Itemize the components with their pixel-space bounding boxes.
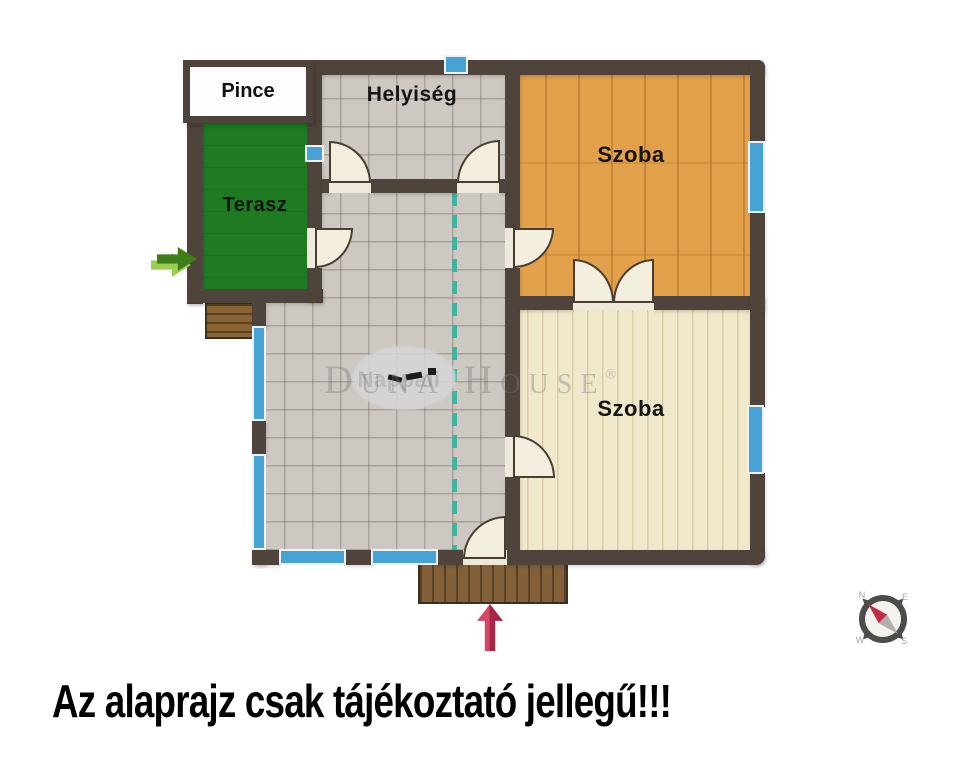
wall-terasz-right-b [307, 161, 322, 228]
terasz-label: Terasz [203, 194, 307, 217]
pince-label: Pince [221, 80, 274, 103]
window-nappali-left-upper [252, 326, 266, 421]
szoba-bottom-floor [512, 300, 758, 557]
window-szoba-top-right [748, 141, 765, 213]
window-nappali-bottom-left [279, 549, 346, 565]
wall-szoba-divider-b [654, 296, 765, 310]
wall-helyiseg-bottom-b [371, 179, 458, 193]
compass-e: E [902, 592, 908, 602]
disclaimer-text: Az alaprajz csak tájékoztató jellegű!!! [52, 674, 671, 728]
wall-szoba-divider-a [518, 296, 573, 310]
wall-bottom-a [252, 550, 280, 565]
wall-right-a [750, 60, 765, 143]
pince-box: Pince [183, 60, 313, 123]
window-nappali-left-lower [252, 454, 266, 550]
compass-s: S [901, 636, 907, 646]
wall-helyiseg-bottom-c [499, 179, 506, 193]
entrance-deck [418, 563, 568, 604]
floor-plan: Pince Terasz Helyiség Szoba Nappali Szob… [0, 0, 962, 768]
window-terasz-wall [305, 145, 324, 162]
wall-mid-c [505, 477, 520, 557]
wall-bottom-d [507, 550, 765, 565]
wall-right-b [750, 212, 765, 407]
registered-mark: ® [605, 368, 616, 383]
side-entrance-arrow-icon [151, 246, 197, 279]
compass-icon: N E W S [846, 582, 920, 656]
window-top-small [444, 55, 468, 74]
wall-terasz-right-c [307, 268, 322, 302]
compass-n: N [859, 590, 866, 600]
window-nappali-bottom-right [371, 549, 438, 565]
watermark-text: Duna House® [290, 356, 650, 403]
helyiseg-label: Helyiség [312, 83, 512, 107]
wall-terasz-bottom [187, 289, 323, 303]
wall-bottom-c [437, 550, 463, 565]
terasz-steps [205, 302, 257, 339]
wall-bottom-b [345, 550, 372, 565]
compass-w: W [856, 635, 865, 645]
wall-nappali-left-b [252, 420, 266, 456]
main-entrance-arrow-icon [477, 604, 503, 651]
szoba-top-label: Szoba [512, 142, 750, 168]
wall-nappali-left-a [252, 302, 266, 328]
